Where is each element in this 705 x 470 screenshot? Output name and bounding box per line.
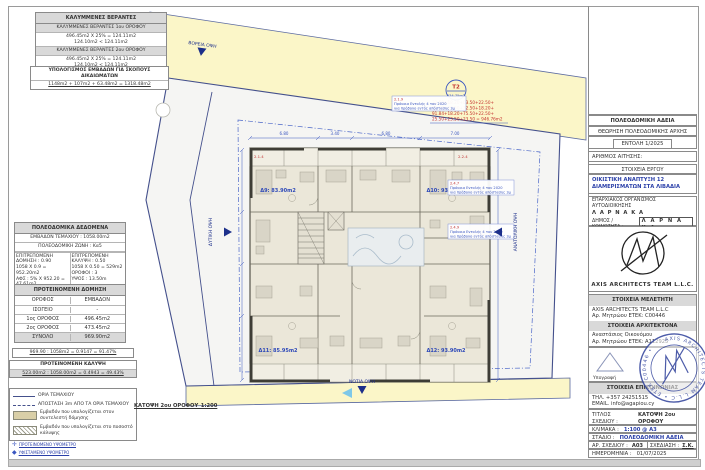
application-number-row: ΑΡΙΘΜΟΣ ΑΙΤΗΣΗΣ:: [588, 151, 697, 162]
proposed-row-ground: ΙΣΟΓΕΙΟ -: [15, 306, 125, 315]
svg-text:ΑΝΑΤΟΛΙΚΗ ΟΨΗ: ΑΝΑΤΟΛΙΚΗ ΟΨΗ: [513, 213, 519, 251]
legend-setback: ΑΠΟΣΤΑΣΗ 3m ΑΠΟ ΤΑ ΟΡΙΑ ΤΕΜΑΧΙΟΥ: [13, 402, 133, 408]
axis-logo: [611, 229, 675, 279]
svg-text:για πρόβολο εντός απόστασης 3μ: για πρόβολο εντός απόστασης 3μ: [450, 235, 512, 239]
coverage-formula: 523.00m2 : 1058.00m2 = 0.4943 = 49.43%: [10, 370, 136, 378]
signature-label: Υπογραφή: [593, 376, 696, 382]
logo-text: AXIS ARCHITECTS TEAM L.L.C.: [589, 282, 696, 289]
svg-text:25.50+23.50+23.50 = 946.76m2: 25.50+23.50+23.50 = 946.76m2: [432, 117, 503, 122]
existing-level-icon: ◆: [12, 449, 17, 456]
date-row: ΗΜΕΡΟΜΗΝΙΑ : 01/07/2025: [588, 449, 697, 458]
designer-header: ΣΤΟΙΧΕΙΑ ΜΕΛΕΤΗΤΗ: [589, 295, 696, 306]
proposed-title: ΠΡΟΤΕΙΝΟΜΕΝΗ ΔΟΜΗΣΗ: [15, 285, 125, 296]
verandas-row1-calc: 496.45m2 Χ 25% = 124.11m2 124.10m2 < 124…: [36, 33, 166, 47]
drawing-title-row: ΤΙΤΛΟΣ ΣΧΕΔΙΟΥ : ΚΑΤΟΨΗ 2ου ΟΡΟΦΟΥ: [588, 409, 697, 425]
svg-text:7.00: 7.00: [451, 131, 460, 136]
order-number-row: ΕΝΤΟΛΗ 1/2025: [588, 136, 697, 149]
svg-text:ΝΟΤΙΑ ΟΨΗ: ΝΟΤΙΑ ΟΨΗ: [349, 379, 375, 385]
proposed-building-table: ΠΡΟΤΕΙΝΟΜΕΝΗ ΔΟΜΗΣΗ ΟΡΟΦΟΣ ΕΜΒΑΔΟΝ ΙΣΟΓΕ…: [14, 284, 126, 343]
svg-text:για πρόβολο εντός απόστασης 3μ: για πρόβολο εντός απόστασης 3μ: [450, 191, 512, 195]
project-header-row: ΣΤΟΙΧΕΙΑ ΕΡΓΟΥ: [588, 164, 697, 174]
svg-text:2.4.9: 2.4.9: [450, 226, 460, 230]
logo-block: AXIS ARCHITECTS TEAM L.L.C.: [588, 226, 697, 292]
scale-label: ΚΛΙΜΑΚΑ :: [589, 426, 622, 432]
authority-row: ΘΕΩΡΗΣΗ ΠΟΛΕΟΔΟΜΙΚΗΣ ΑΡΧΗΣ: [588, 126, 697, 136]
architect-header: ΣΤΟΙΧΕΙΑ ΑΡΧΙΤΕΚΤΟΝΑ: [589, 321, 696, 332]
verandas-title: ΚΑΛΥΜΜΕΝΕΣ ΒΕΡΑΝΤΕΣ: [36, 13, 166, 24]
svg-text:Πρόνοια Εντολής 4 του 2020: Πρόνοια Εντολής 4 του 2020: [450, 186, 503, 190]
drawing-no-value: Α03: [631, 442, 648, 448]
verandas-table: ΚΑΛΥΜΜΕΝΕΣ ΒΕΡΑΝΤΕΣ ΚΑΛΥΜΜΕΝΕΣ ΒΕΡΑΝΤΕΣ …: [35, 12, 167, 71]
coverage-area-swatch: [13, 426, 37, 435]
zone-row: ΠΟΛΕΟΔΟΜΙΚΗ ΖΩΝΗ : Κα5: [15, 243, 125, 252]
stage-label: ΣΤΑΔΙΟ :: [589, 434, 618, 440]
rights-calc-box: ΥΠΟΛΟΓΙΣΜΟΣ ΕΜΒΑΔΩΝ ΓΙΑ ΣΚΟΠΟΥΣ ΔΙΚΑΙΩΜΑ…: [30, 66, 169, 90]
svg-text:2.4.7: 2.4.7: [450, 182, 459, 186]
planning-title: ΠΟΛΕΟΔΟΜΙΚΑ ΔΕΔΟΜΕΝΑ: [15, 223, 125, 234]
district-block: ΕΠΑΡΧΙΑΚΟΣ ΟΡΓΑΝΙΣΜΟΣ ΑΥΤΟΔΙΟΙΚΗΣΗΣ Λ Α …: [588, 196, 697, 226]
boundary-line-swatch: [13, 396, 35, 397]
proposed-level-icon: ✛: [12, 441, 17, 448]
drawing-no-label: ΑΡ. ΣΧΕΔΙΟΥ :: [589, 442, 631, 448]
district-name: Λ Α Ρ Ν Α Κ Α: [592, 210, 693, 217]
svg-text:Δ12: 93.90m2: Δ12: 93.90m2: [426, 348, 466, 354]
drawing-title-value: ΚΑΤΟΨΗ 2ου ΟΡΟΦΟΥ: [637, 410, 696, 424]
svg-text:6.80: 6.80: [382, 131, 391, 136]
email-value[interactable]: EMAIL. info@agapiou.cy: [592, 401, 693, 408]
svg-text:T2: T2: [452, 85, 460, 91]
verandas-row1-header: ΚΑΛΥΜΜΕΝΕΣ ΒΕΡΑΝΤΕΣ 1ου ΟΡΟΦΟΥ: [36, 24, 166, 33]
rights-formula: 1148m2 + 107m2 + 63.48m2 = 1318.48m2: [31, 81, 168, 89]
level-markers: ✛ ΠΡΟΤΕΙΝΟΜΕΝΟ ΥΨΟΜΕΤΡΟ ◆ ΥΦΙΣΤΑΜΕΝΟ ΥΨΟ…: [12, 441, 76, 456]
svg-text:6.80: 6.80: [280, 131, 289, 136]
date-label: ΗΜΕΡΟΜΗΝΙΑ :: [589, 450, 635, 457]
stage-row: ΣΤΑΔΙΟ : ΠΟΛΕΟΔΟΜΙΚΗ ΑΔΕΙΑ: [588, 433, 697, 441]
svg-text:Πρόνοια Εντολής 4 του 2020: Πρόνοια Εντολής 4 του 2020: [394, 102, 447, 106]
proposed-row-1st: 1ος ΟΡΟΦΟΣ 496.45m2: [15, 315, 125, 324]
note-box-2: 2.4.7 Πρόνοια Εντολής 4 του 2020 για πρό…: [448, 180, 514, 195]
note-box-1: 2.1.9 Πρόνοια Εντολής 4 του 2020 για πρό…: [392, 96, 466, 111]
courtyard: [348, 228, 424, 266]
signature-box[interactable]: Υπογραφή: [588, 347, 697, 382]
proposed-row-2nd: 2ος ΟΡΟΦΟΣ 473.45m2: [15, 324, 125, 333]
scale-value: 1:100 @ A3: [622, 426, 659, 432]
svg-text:Δ9: 83.90m2: Δ9: 83.90m2: [260, 188, 296, 194]
title-block-empty-box: [588, 6, 697, 115]
proposed-row-total: ΣΥΝΟΛΟ 969.90m2: [15, 333, 125, 341]
signature-sketch: [595, 351, 625, 373]
legend-boundary: ΟΡΙΑ ΤΕΜΑΧΙΟΥ: [13, 393, 133, 399]
verandas-row2-header: ΚΑΛΥΜΜΕΝΕΣ ΒΕΡΑΝΤΕΣ 2ου ΟΡΟΦΟΥ: [36, 47, 166, 56]
date-value: 01/07/2025: [635, 450, 669, 457]
note-box-3: 2.4.9 Πρόνοια Εντολής 4 του 2020 για πρό…: [448, 224, 514, 239]
svg-text:ΔΥΤΙΚΗ ΟΨΗ: ΔΥΤΙΚΗ ΟΨΗ: [208, 218, 214, 246]
building-ratio: 969.90 : 1058m2 = 0.9147 = 91.47%: [12, 348, 134, 358]
permit-title-row: ΠΟΛΕΟΔΟΜΙΚΗ ΑΔΕΙΑ: [588, 115, 697, 126]
scale-row: ΚΛΙΜΑΚΑ : 1:100 @ A3: [588, 425, 697, 433]
coverage-box: ΠΡΟΤΕΙΝΟΜΕΝΗ ΚΑΛΥΨΗ 523.00m2 : 1058.00m2…: [9, 360, 137, 378]
svg-text:91.84+18.20+75.50+22.50+: 91.84+18.20+75.50+22.50+: [432, 111, 494, 116]
svg-text:Δ11: 85.95m2: Δ11: 85.95m2: [258, 348, 298, 354]
district-org: ΕΠΑΡΧΙΑΚΟΣ ΟΡΓΑΝΙΣΜΟΣ ΑΥΤΟΔΙΟΙΚΗΣΗΣ: [592, 198, 693, 210]
legend-density: Εμβαδόν που υπολογίζεται στον συντελεστή…: [13, 410, 133, 421]
stage-value: ΠΟΛΕΟΔΟΜΙΚΗ ΑΔΕΙΑ: [618, 434, 686, 440]
designer-block: ΣΤΟΙΧΕΙΑ ΜΕΛΕΤΗΤΗ AXIS ARCHITECTS TEAM L…: [588, 294, 697, 347]
contact-header: ΣΤΟΙΧΕΙΑ ΕΠΙΚΟΙΝΩΝΙΑΣ: [589, 383, 696, 394]
plot-area-row: ΕΜΒΑΔΟΝ ΤΕΜΑΧΙΟΥ : 1058.00m2: [15, 234, 125, 243]
designer-registration: Αρ. Μητρώου ΕΤΕΚ: C00446: [592, 313, 693, 320]
drawn-value: Σ.Κ.: [681, 442, 695, 448]
coverage-title: ΠΡΟΤΕΙΝΟΜΕΝΗ ΚΑΛΥΨΗ: [10, 361, 136, 370]
legend-coverage: Εμβαδόν που υπολογίζεται στο ποσοστό κάλ…: [13, 425, 133, 436]
svg-text:για πρόβολο εντός απόστασης 3μ: για πρόβολο εντός απόστασης 3μ: [394, 107, 456, 111]
drawing-title-label: ΤΙΤΛΟΣ ΣΧΕΔΙΟΥ :: [589, 410, 637, 424]
drawing-sheet: 6.80 3.40 6.80 7.00 Δ9: 83.90m2 Δ10: 93.…: [0, 0, 705, 470]
drawn-label: ΣΧΕΔΙΑΣΗ :: [648, 442, 681, 448]
rights-title: ΥΠΟΛΟΓΙΣΜΟΣ ΕΜΒΑΔΩΝ ΓΙΑ ΣΚΟΠΟΥΣ ΔΙΚΑΙΩΜΑ…: [31, 67, 168, 81]
legend-box: ΟΡΙΑ ΤΕΜΑΧΙΟΥ ΑΠΟΣΤΑΣΗ 3m ΑΠΟ ΤΑ ΟΡΙΑ ΤΕ…: [9, 388, 137, 441]
density-area-swatch: [13, 411, 37, 420]
proposed-header-row: ΟΡΟΦΟΣ ΕΜΒΑΔΟΝ: [15, 296, 125, 305]
drawing-number-row: ΑΡ. ΣΧΕΔΙΟΥ : Α03 ΣΧΕΔΙΑΣΗ : Σ.Κ.: [588, 441, 697, 449]
svg-text:2.1.9: 2.1.9: [394, 98, 404, 102]
contact-block: ΣΤΟΙΧΕΙΑ ΕΠΙΚΟΙΝΩΝΙΑΣ ΤΗΛ. +357 24251515…: [588, 382, 697, 409]
svg-text:3.40: 3.40: [331, 131, 340, 136]
setback-line-swatch: [13, 405, 35, 406]
plan-caption: ΚΑΤΟΨΗ 2ου ΟΡΟΦΟΥ_1:200: [134, 403, 217, 409]
project-title-row: ΟΙΚΙΣΤΙΚΗ ΑΝΑΠΤΥΞΗ 12 ΔΙΑΜΕΡΙΣΜΑΤΩΝ ΣΤΑ …: [588, 174, 697, 194]
svg-text:2.1.4: 2.1.4: [254, 154, 264, 159]
svg-text:2.2.4: 2.2.4: [458, 154, 468, 159]
architect-registration: Αρ. Μητρώου ΕΤΕΚ: Α112925: [592, 339, 693, 346]
